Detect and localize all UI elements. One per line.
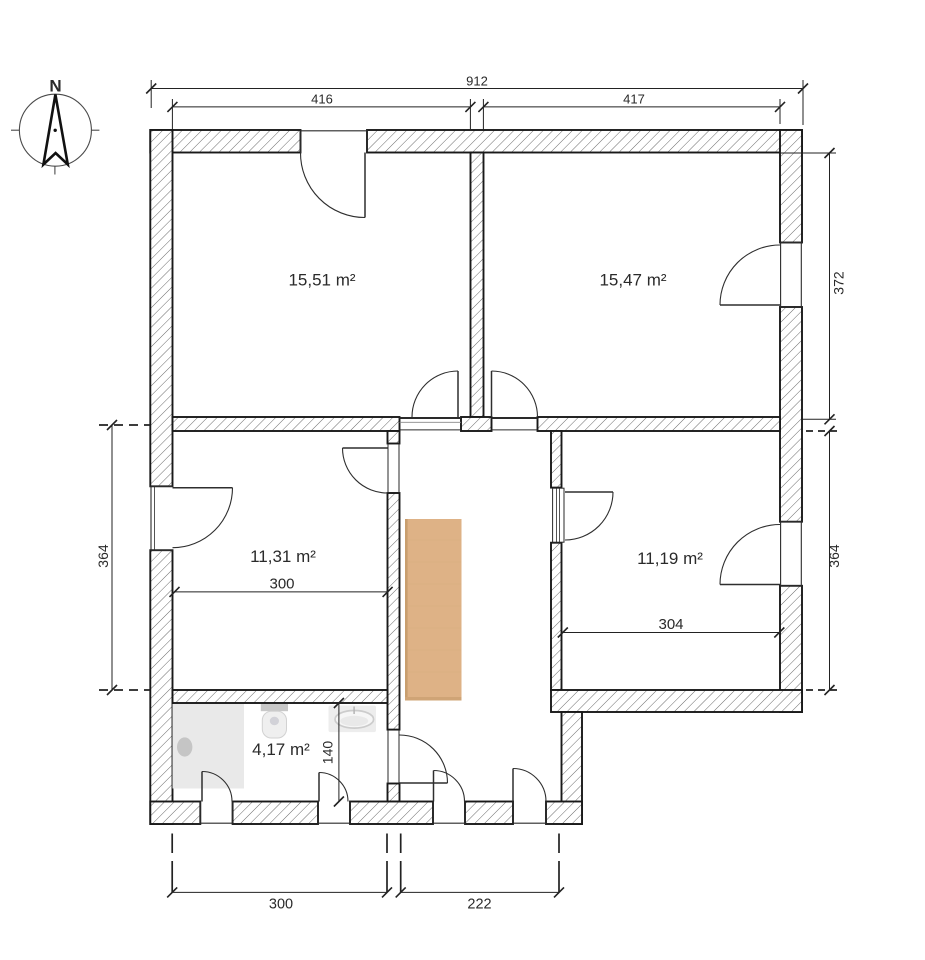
svg-text:364: 364 (95, 544, 111, 568)
svg-text:304: 304 (658, 616, 683, 633)
svg-text:11,19 m²: 11,19 m² (637, 549, 703, 568)
svg-text:416: 416 (311, 92, 333, 107)
svg-text:222: 222 (467, 897, 491, 913)
svg-text:4,17 m²: 4,17 m² (252, 740, 310, 759)
svg-text:140: 140 (320, 741, 336, 765)
svg-text:300: 300 (269, 897, 293, 913)
svg-text:372: 372 (831, 271, 847, 295)
svg-text:N: N (49, 77, 61, 96)
svg-text:417: 417 (623, 92, 645, 107)
svg-text:11,31 m²: 11,31 m² (250, 547, 316, 566)
svg-text:15,47 m²: 15,47 m² (599, 271, 666, 290)
svg-text:912: 912 (466, 74, 488, 89)
svg-text:15,51 m²: 15,51 m² (288, 271, 355, 290)
svg-text:300: 300 (269, 576, 294, 593)
svg-text:364: 364 (826, 544, 842, 568)
